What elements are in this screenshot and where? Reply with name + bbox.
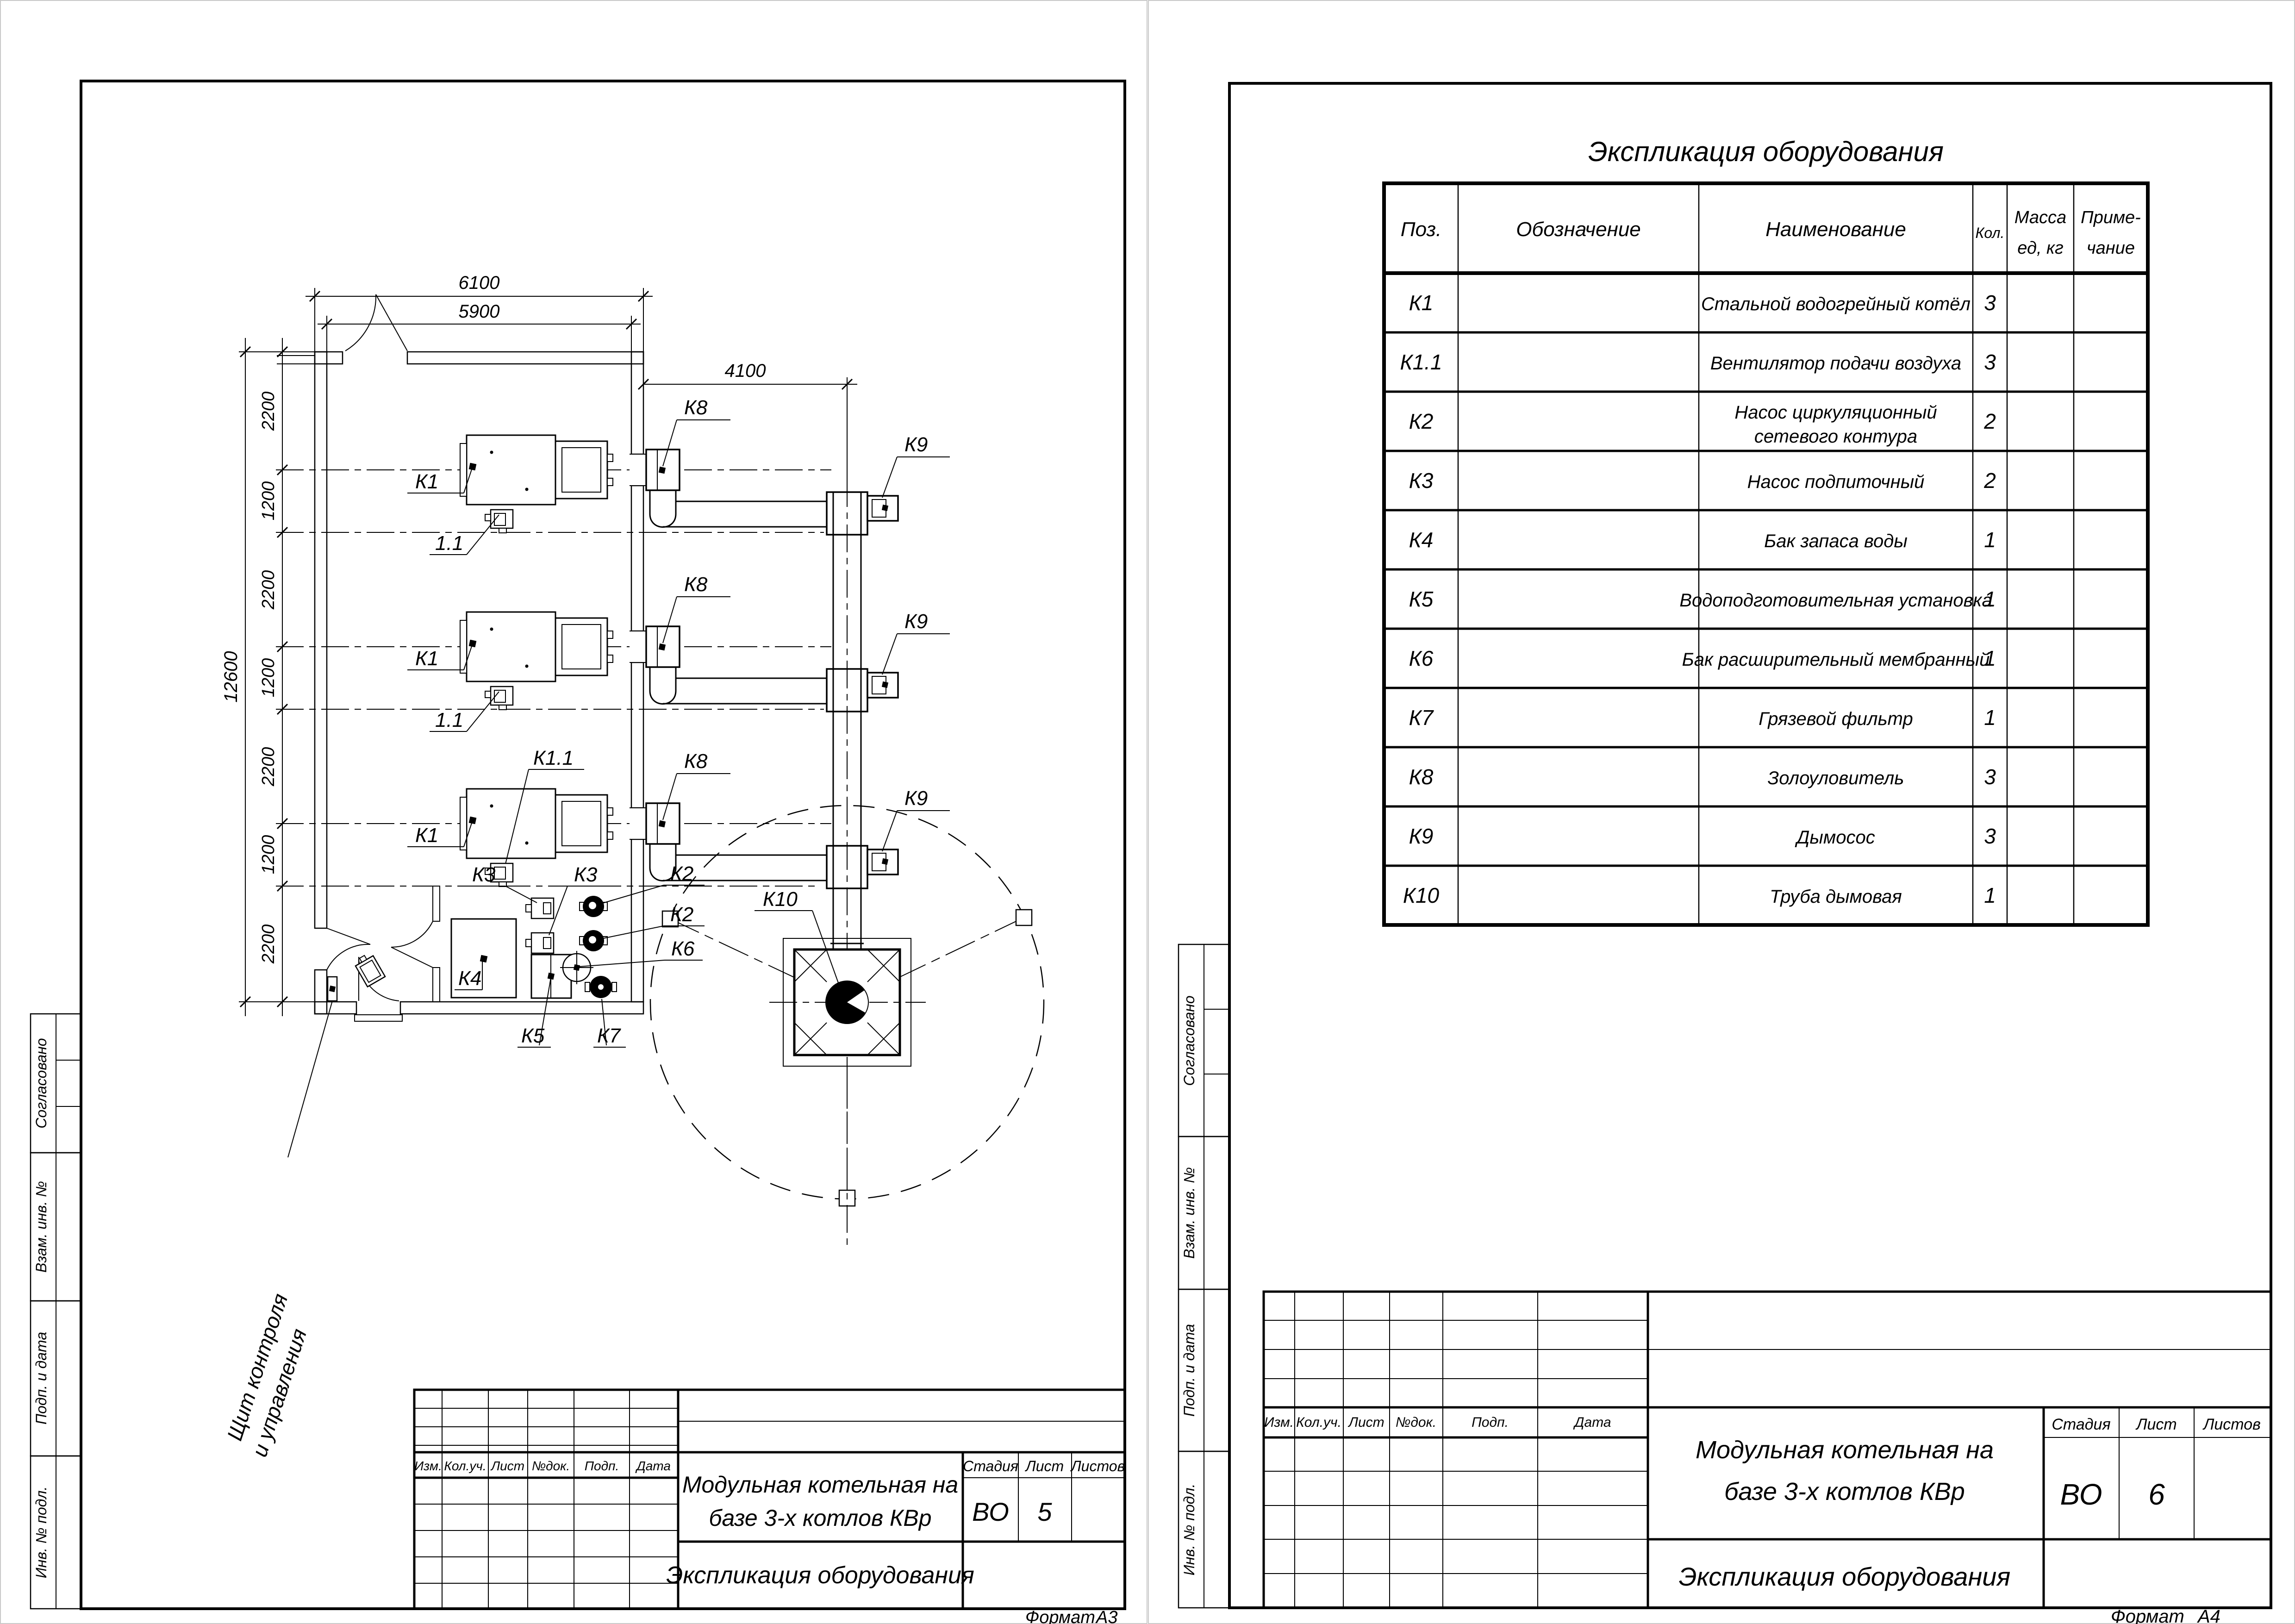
col-mass-1: Масса bbox=[2014, 208, 2066, 227]
guy-anchor-right bbox=[1016, 910, 1032, 925]
drawing-svg: Согласовано Взам. инв. № Подп. и дата Ин… bbox=[0, 0, 2295, 1624]
row2-name: Вентилятор подачи воздуха bbox=[1710, 353, 1961, 374]
label-k4: К4 bbox=[458, 967, 481, 990]
row8-pos: К7 bbox=[1409, 706, 1434, 730]
chimney-k10 bbox=[755, 911, 926, 1066]
label-k6: К6 bbox=[671, 937, 695, 960]
row7-pos: К6 bbox=[1409, 646, 1434, 670]
format-label: Формат bbox=[2111, 1606, 2184, 1624]
dim-chain-5: 2200 bbox=[259, 747, 278, 787]
col-mass-2: ед, кг bbox=[2017, 238, 2064, 258]
left-titleblock: Изм. Кол.уч. Лист №док. Подп. Дата Модул… bbox=[414, 1390, 1125, 1624]
row2-pos: К1.1 bbox=[1400, 350, 1442, 374]
row1-pos: К1 bbox=[1409, 291, 1434, 315]
row4-qty: 2 bbox=[1983, 468, 1996, 493]
stamp-vzam: Взам. инв. № bbox=[33, 1181, 50, 1273]
col-pos: Поз. bbox=[1401, 218, 1442, 241]
row5-name: Бак запаса воды bbox=[1764, 531, 1908, 551]
rev-podp: Подп. bbox=[1472, 1415, 1509, 1430]
flue-row-1 bbox=[630, 420, 950, 535]
col-name: Наименование bbox=[1765, 218, 1906, 241]
col-qty: Кол. bbox=[1976, 225, 2005, 241]
col-note-2: чание bbox=[2087, 238, 2135, 258]
sheets-label: Листов bbox=[2202, 1416, 2261, 1433]
sheet-label: Лист bbox=[1025, 1458, 1064, 1474]
row8-qty: 1 bbox=[1984, 706, 1996, 730]
format-value: А4 bbox=[2197, 1606, 2220, 1624]
row11-name: Труба дымовая bbox=[1770, 887, 1902, 907]
label-k8-3: К8 bbox=[684, 750, 708, 773]
label-k1-1: К1 bbox=[415, 470, 438, 493]
label-fan-1: 1.1 bbox=[435, 532, 463, 555]
spec-row-7: К6 Бак расширительный мембранный 1 bbox=[1409, 646, 1996, 670]
rev-kol: Кол.уч. bbox=[444, 1459, 486, 1473]
dim-5900: 5900 bbox=[459, 301, 500, 322]
row1-name: Стальной водогрейный котёл bbox=[1701, 294, 1971, 314]
rev-list: Лист bbox=[490, 1459, 524, 1473]
rev-data: Дата bbox=[1573, 1415, 1611, 1430]
stamp-vzam: Взам. инв. № bbox=[1181, 1167, 1197, 1259]
row9-qty: 3 bbox=[1984, 765, 1996, 789]
right-side-stamps: Согласовано Взам. инв. № Подп. и дата Ин… bbox=[1179, 944, 1229, 1608]
flue-row-2 bbox=[630, 597, 950, 712]
sheets-label: Листов bbox=[1070, 1458, 1125, 1474]
row4-pos: К3 bbox=[1409, 468, 1434, 493]
row6-qty: 1 bbox=[1984, 587, 1996, 611]
row6-pos: К5 bbox=[1409, 587, 1434, 611]
stamp-inv: Инв. № подл. bbox=[33, 1487, 50, 1579]
row10-name: Дымосос bbox=[1795, 827, 1875, 848]
dim-6100: 6100 bbox=[459, 273, 500, 293]
pump-k2-1 bbox=[580, 896, 607, 917]
spec-row-6: К5 Водоподготовительная установка 1 bbox=[1409, 587, 1996, 611]
label-k3-2: К3 bbox=[574, 863, 598, 886]
row3-pos: К2 bbox=[1409, 409, 1434, 433]
label-k3-1: К3 bbox=[472, 863, 496, 886]
dim-chain-7: 2200 bbox=[259, 924, 278, 964]
label-k10: К10 bbox=[763, 888, 798, 911]
dim-chain-1: 2200 bbox=[259, 392, 278, 431]
rev-list: Лист bbox=[1347, 1415, 1384, 1430]
label-k9-1: К9 bbox=[904, 433, 928, 456]
label-fan-3: К1.1 bbox=[533, 747, 574, 769]
col-note-1: Приме- bbox=[2081, 208, 2141, 227]
row3-qty: 2 bbox=[1983, 409, 1996, 433]
spec-row-5: К4 Бак запаса воды 1 bbox=[1409, 528, 1996, 552]
left-side-stamps: Согласовано Взам. инв. № Подп. и дата Ин… bbox=[31, 1014, 81, 1609]
row9-name: Золоуловитель bbox=[1768, 768, 1904, 788]
row10-qty: 3 bbox=[1984, 824, 1996, 848]
label-fan-2: 1.1 bbox=[435, 709, 463, 731]
row3-name-1: Насос циркуляционный bbox=[1734, 402, 1937, 423]
row11-qty: 1 bbox=[1984, 883, 1996, 907]
spec-table: Экспликация оборудования Поз. Обозначени… bbox=[1384, 136, 2148, 925]
dim-chain-3: 2200 bbox=[259, 570, 278, 610]
col-designation: Обозначение bbox=[1516, 218, 1641, 241]
pump-k3-2 bbox=[526, 933, 554, 953]
row5-pos: К4 bbox=[1409, 528, 1434, 552]
row7-qty: 1 bbox=[1984, 646, 1996, 670]
spec-title: Экспликация оборудования bbox=[1588, 136, 1944, 167]
dim-chain-4: 1200 bbox=[259, 658, 278, 698]
sheet-spec: Согласовано Взам. инв. № Подп. и дата Ин… bbox=[1148, 0, 2295, 1624]
stamp-inv: Инв. № подл. bbox=[1181, 1484, 1197, 1576]
sheet-plan: Согласовано Взам. инв. № Подп. и дата Ин… bbox=[0, 0, 1147, 1624]
plan-note: Щит контроля и управления bbox=[222, 1291, 311, 1460]
dim-left: 12600 2200 1200 2200 1200 2200 1200 2200 bbox=[221, 338, 315, 1016]
label-k8-2: К8 bbox=[684, 573, 708, 596]
spec-row-10: К9 Дымосос 3 bbox=[1409, 824, 1996, 848]
spec-row-9: К8 Золоуловитель 3 bbox=[1409, 765, 1996, 789]
dim-12600: 12600 bbox=[221, 651, 241, 702]
format-value: А3 bbox=[1095, 1608, 1117, 1624]
filter-k7 bbox=[585, 976, 617, 998]
spec-header-row: Поз. Обозначение Наименование Кол. Масса… bbox=[1401, 208, 2141, 258]
spec-row-4: К3 Насос подпиточный 2 bbox=[1409, 468, 1996, 493]
stamp-podp: Подп. и дата bbox=[1181, 1324, 1197, 1417]
row9-pos: К8 bbox=[1409, 765, 1434, 789]
label-k8-1: К8 bbox=[684, 396, 708, 419]
dim-4100: 4100 bbox=[725, 361, 766, 381]
spec-row-11: К10 Труба дымовая 1 bbox=[1403, 883, 1996, 907]
label-k9-3: К9 bbox=[904, 787, 928, 810]
stage-value: ВО bbox=[972, 1497, 1009, 1526]
label-k1-2: К1 bbox=[415, 647, 438, 670]
dim-chain-2: 1200 bbox=[259, 481, 278, 521]
stage-label: Стадия bbox=[963, 1458, 1018, 1474]
project-title-1: Модульная котельная на bbox=[1696, 1436, 1994, 1464]
row6-name: Водоподготовительная установка bbox=[1679, 590, 1992, 611]
pump-k2-2 bbox=[580, 930, 607, 951]
stage-label: Стадия bbox=[2052, 1416, 2110, 1433]
drawing-canvas: Согласовано Взам. инв. № Подп. и дата Ин… bbox=[0, 0, 2295, 1624]
row1-qty: 3 bbox=[1984, 291, 1996, 315]
sink bbox=[353, 952, 385, 987]
rev-kol: Кол.уч. bbox=[1296, 1415, 1341, 1430]
row5-qty: 1 bbox=[1984, 528, 1996, 552]
project-title-2: базе 3-х котлов КВр bbox=[709, 1505, 931, 1531]
right-titleblock: Изм. Кол.уч. Лист №док. Подп. Дата Модул… bbox=[1264, 1292, 2271, 1624]
row2-qty: 3 bbox=[1984, 350, 1996, 374]
spec-row-1: К1 Стальной водогрейный котёл 3 bbox=[1409, 291, 1996, 315]
label-k9-2: К9 bbox=[904, 610, 928, 633]
doc-name: Экспликация оборудования bbox=[1679, 1562, 2011, 1591]
project-title-1: Модульная котельная на bbox=[682, 1472, 958, 1498]
spec-row-3: К2 Насос циркуляционный сетевого контура… bbox=[1409, 402, 1996, 447]
rev-podp: Подп. bbox=[585, 1459, 619, 1473]
stamp-soglasovano: Согласовано bbox=[33, 1038, 50, 1128]
stamp-soglasovano: Согласовано bbox=[1181, 995, 1197, 1086]
rev-doc: №док. bbox=[532, 1459, 570, 1473]
dim-chain-6: 1200 bbox=[259, 835, 278, 874]
pump-k3-1 bbox=[526, 898, 554, 918]
row7-name: Бак расширительный мембранный bbox=[1682, 650, 1990, 670]
label-k1-3: К1 bbox=[415, 824, 438, 847]
label-k2-1: К2 bbox=[670, 862, 693, 885]
format-label: Формат bbox=[1025, 1608, 1095, 1624]
rev-izm: Изм. bbox=[1264, 1415, 1294, 1430]
sheet-value: 6 bbox=[2148, 1478, 2165, 1511]
sheet-label: Лист bbox=[2135, 1416, 2177, 1433]
stamp-podp: Подп. и дата bbox=[33, 1332, 50, 1424]
row10-pos: К9 bbox=[1409, 824, 1434, 848]
rev-data: Дата bbox=[635, 1459, 671, 1473]
equipment-room bbox=[288, 896, 617, 1157]
row4-name: Насос подпиточный bbox=[1747, 472, 1925, 492]
row11-pos: К10 bbox=[1403, 883, 1440, 907]
row3-name-2: сетевого контура bbox=[1754, 426, 1917, 447]
sheet-value: 5 bbox=[1037, 1497, 1052, 1526]
rev-izm: Изм. bbox=[414, 1459, 442, 1473]
control-panel bbox=[328, 977, 337, 1001]
doc-name: Экспликация оборудования bbox=[666, 1562, 974, 1589]
row8-name: Грязевой фильтр bbox=[1759, 709, 1913, 729]
spec-row-2: К1.1 Вентилятор подачи воздуха 3 bbox=[1400, 350, 1996, 374]
plan-drawing: 6100 5900 4100 12600 2200 1200 bbox=[221, 273, 1044, 1460]
project-title-2: базе 3-х котлов КВр bbox=[1724, 1478, 1965, 1505]
stage-value: ВО bbox=[2060, 1478, 2102, 1511]
label-k2-2: К2 bbox=[670, 903, 693, 926]
spec-row-8: К7 Грязевой фильтр 1 bbox=[1409, 706, 1996, 730]
label-k7: К7 bbox=[597, 1024, 621, 1047]
rev-doc: №док. bbox=[1396, 1415, 1436, 1430]
label-k5: К5 bbox=[521, 1024, 545, 1047]
